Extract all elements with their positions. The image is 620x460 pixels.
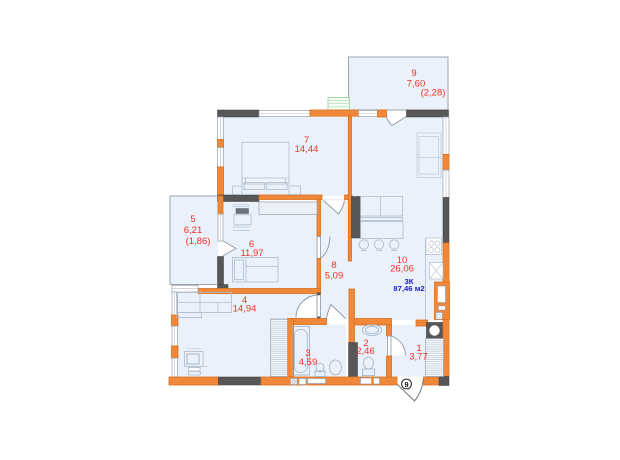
svg-text:(2,28): (2,28) (421, 88, 446, 99)
svg-text:11,97: 11,97 (240, 248, 263, 259)
svg-text:26,06: 26,06 (390, 264, 414, 275)
svg-text:5: 5 (190, 214, 195, 225)
svg-text:3,77: 3,77 (409, 352, 428, 363)
svg-text:8: 8 (331, 260, 336, 271)
svg-text:14,94: 14,94 (233, 304, 257, 315)
svg-text:9: 9 (411, 68, 416, 79)
svg-text:9: 9 (404, 380, 408, 389)
svg-text:4,59: 4,59 (299, 357, 318, 368)
svg-text:14,44: 14,44 (295, 144, 319, 155)
svg-text:(1,86): (1,86) (186, 236, 211, 247)
svg-text:87,46 м2: 87,46 м2 (393, 284, 424, 293)
svg-text:5,09: 5,09 (325, 271, 344, 282)
svg-text:6,21: 6,21 (184, 225, 203, 236)
svg-text:2,46: 2,46 (356, 346, 375, 357)
